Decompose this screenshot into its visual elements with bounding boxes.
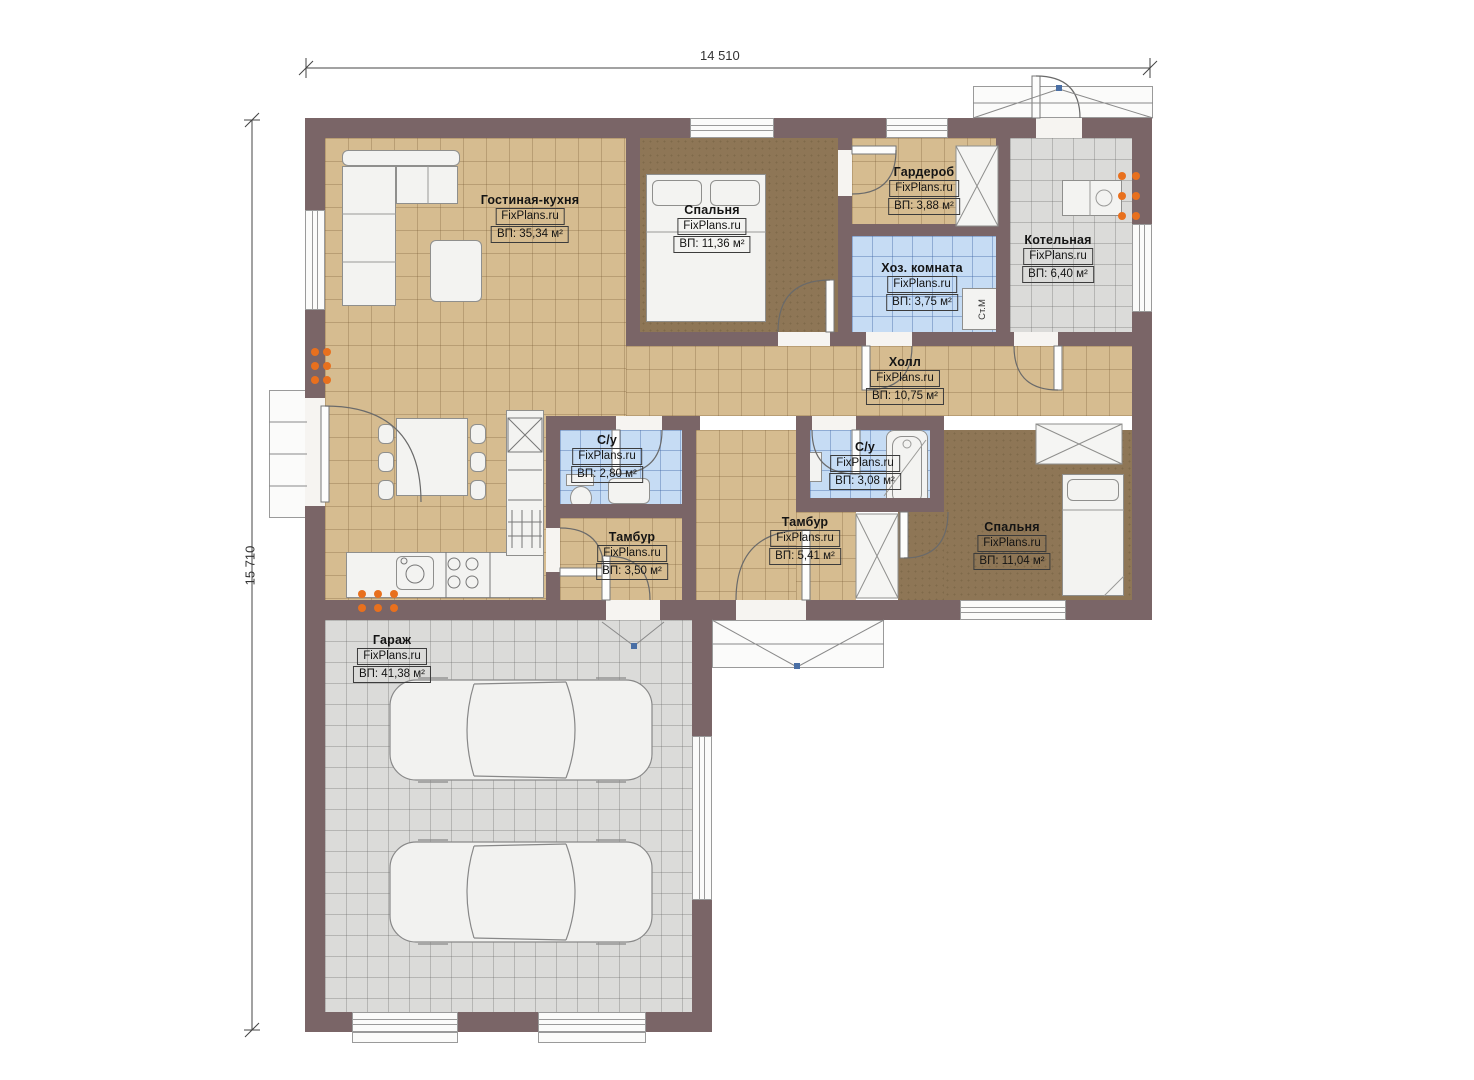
floor-plan: Ст.М	[0, 0, 1474, 1080]
chair	[470, 452, 486, 472]
room-label-boiler: Котельная FixPlans.ru ВП: 6,40 м²	[1022, 233, 1094, 283]
room-area: ВП: 35,34 м²	[491, 226, 569, 243]
room-watermark: FixPlans.ru	[770, 530, 840, 547]
room-label-bedroom1: Спальня FixPlans.ru ВП: 11,36 м²	[673, 203, 750, 253]
door-opening-garage	[606, 600, 660, 620]
sofa-seat	[396, 166, 458, 204]
dimension-width-label: 14 510	[700, 48, 740, 63]
room-label-wc2: С/у FixPlans.ru ВП: 3,08 м²	[829, 440, 901, 490]
room-label-bedroom2: Спальня FixPlans.ru ВП: 11,04 м²	[973, 520, 1050, 570]
wall-bedroom2-left	[930, 416, 944, 512]
room-watermark: FixPlans.ru	[357, 648, 427, 665]
room-label-hall: Холл FixPlans.ru ВП: 10,75 м²	[866, 355, 944, 405]
door-opening-utility	[866, 332, 912, 346]
room-area: ВП: 10,75 м²	[866, 388, 944, 405]
washing-machine-label: Ст.М	[977, 299, 988, 320]
coffee-table	[430, 240, 482, 302]
room-watermark: FixPlans.ru	[889, 180, 959, 197]
room-label-garage: Гараж FixPlans.ru ВП: 41,38 м²	[353, 633, 431, 683]
window-bedroom2	[960, 600, 1066, 620]
room-name: Котельная	[1024, 233, 1091, 247]
wall-wc2-bottom	[796, 498, 944, 512]
wall-boiler-left	[996, 138, 1010, 346]
kitchen-counter	[346, 552, 544, 598]
room-watermark: FixPlans.ru	[887, 276, 957, 293]
room-watermark: FixPlans.ru	[1023, 248, 1093, 265]
garage-door-2	[538, 1012, 646, 1032]
room-area: ВП: 3,08 м²	[829, 473, 901, 490]
room-name: Тамбур	[609, 530, 656, 544]
room-name: С/у	[597, 433, 617, 447]
dining-table	[396, 418, 468, 496]
kitchen-sink	[396, 556, 434, 590]
sofa-chaise	[342, 166, 396, 306]
room-name: Спальня	[684, 203, 739, 217]
room-label-utility: Хоз. комната FixPlans.ru ВП: 3,75 м²	[881, 261, 963, 311]
room-name: Спальня	[984, 520, 1039, 534]
window-bedroom1	[690, 118, 774, 138]
door-opening-wc1	[616, 416, 662, 430]
room-watermark: FixPlans.ru	[597, 545, 667, 562]
porch-north	[973, 86, 1153, 118]
room-name: Тамбур	[782, 515, 829, 529]
room-label-wc1: С/у FixPlans.ru ВП: 2,80 м²	[571, 433, 643, 483]
wall-wc1-bottom	[560, 504, 696, 518]
room-watermark: FixPlans.ru	[977, 535, 1047, 552]
terrace-west	[269, 390, 307, 518]
room-name: Гостиная-кухня	[481, 193, 580, 207]
door-opening-tambour1	[546, 528, 560, 572]
room-area: ВП: 2,80 м²	[571, 466, 643, 483]
door-opening-entry-south	[736, 600, 806, 620]
room-label-tambour1: Тамбур FixPlans.ru ВП: 3,50 м²	[596, 530, 668, 580]
room-watermark: FixPlans.ru	[677, 218, 747, 235]
room-area: ВП: 5,41 м²	[769, 548, 841, 565]
room-label-tambour2: Тамбур FixPlans.ru ВП: 5,41 м²	[769, 515, 841, 565]
wall-garage-left	[305, 600, 325, 1032]
room-name: С/у	[855, 440, 875, 454]
porch-south	[712, 620, 884, 668]
room-watermark: FixPlans.ru	[572, 448, 642, 465]
room-label-living: Гостиная-кухня FixPlans.ru ВП: 35,34 м²	[481, 193, 580, 243]
window-boiler	[1132, 224, 1152, 312]
door-opening-wc2	[812, 416, 856, 430]
room-area: ВП: 41,38 м²	[353, 666, 431, 683]
chair	[378, 480, 394, 500]
kitchen-counter-vertical	[506, 410, 544, 556]
room-watermark: FixPlans.ru	[870, 370, 940, 387]
room-area: ВП: 6,40 м²	[1022, 266, 1094, 283]
chair	[470, 480, 486, 500]
room-area: ВП: 3,75 м²	[886, 294, 958, 311]
window-living	[305, 210, 325, 310]
door-opening-wardrobe	[838, 150, 852, 196]
window-garage	[692, 736, 712, 900]
wall-living-right	[546, 416, 560, 600]
wall-left	[305, 118, 325, 620]
pillow	[1067, 479, 1119, 501]
chair	[378, 452, 394, 472]
room-area: ВП: 3,88 м²	[888, 198, 960, 215]
room-name: Гардероб	[894, 165, 955, 179]
room-watermark: FixPlans.ru	[830, 455, 900, 472]
room-area: ВП: 11,04 м²	[973, 553, 1050, 570]
garage-door-1	[352, 1012, 458, 1032]
wall-right	[1132, 118, 1152, 620]
room-watermark: FixPlans.ru	[495, 208, 565, 225]
room-area: ВП: 3,50 м²	[596, 563, 668, 580]
door-opening-bedroom1	[778, 332, 830, 346]
room-name: Холл	[889, 355, 921, 369]
wall-bedroom1-left	[626, 138, 640, 346]
wall-wc2-left	[796, 416, 810, 498]
door-opening-boiler	[1014, 332, 1058, 346]
chair	[378, 424, 394, 444]
door-opening-terrace	[305, 398, 325, 506]
garage-apron-2	[538, 1032, 646, 1043]
room-name: Хоз. комната	[881, 261, 963, 275]
sofa-back	[342, 150, 460, 166]
room-name: Гараж	[373, 633, 411, 647]
dimension-height-label: 15 710	[243, 526, 258, 606]
room-area: ВП: 11,36 м²	[673, 236, 750, 253]
window-wardrobe	[886, 118, 948, 138]
door-opening-entry-north	[1036, 118, 1082, 138]
room-label-wardrobe: Гардероб FixPlans.ru ВП: 3,88 м²	[888, 165, 960, 215]
floor-bedroom-2-nook	[898, 512, 944, 600]
wall-wardrobe-utility	[852, 224, 996, 236]
chair	[470, 424, 486, 444]
garage-apron-1	[352, 1032, 458, 1043]
boiler-unit	[1062, 180, 1122, 216]
